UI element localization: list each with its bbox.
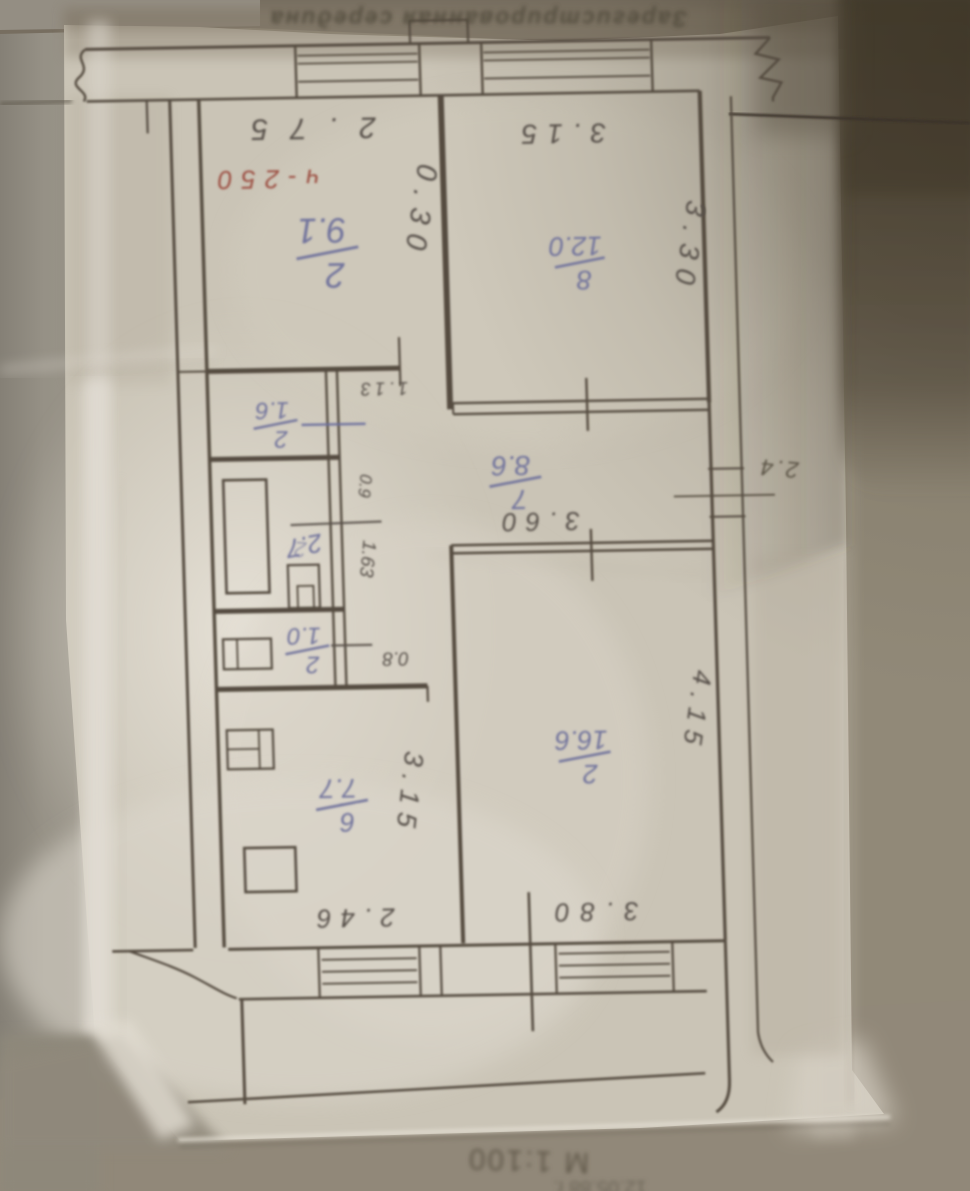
svg-text:7.7: 7.7 xyxy=(318,773,357,804)
svg-text:2.4: 2.4 xyxy=(757,454,801,484)
svg-text:1.0: 1.0 xyxy=(286,622,321,650)
svg-text:2: 2 xyxy=(582,759,599,789)
svg-text:0.8: 0.8 xyxy=(382,647,409,668)
svg-text:12.0: 12.0 xyxy=(549,231,602,262)
svg-text:ч-250: ч-250 xyxy=(208,163,319,195)
svg-text:16.6: 16.6 xyxy=(553,725,607,756)
svg-text:2: 2 xyxy=(325,255,347,294)
svg-text:8: 8 xyxy=(576,265,592,295)
svg-text:0.9: 0.9 xyxy=(354,473,375,499)
svg-text:7: 7 xyxy=(510,484,528,515)
svg-text:2.46: 2.46 xyxy=(308,903,397,935)
svg-text:8.6: 8.6 xyxy=(491,450,531,482)
svg-text:3.60: 3.60 xyxy=(493,506,581,537)
svg-text:12.05.88 г.: 12.05.88 г. xyxy=(553,1176,647,1191)
svg-text:M 1:100: M 1:100 xyxy=(466,1142,589,1179)
svg-text:3.80: 3.80 xyxy=(544,896,639,928)
svg-text:2: 2 xyxy=(306,651,321,678)
svg-text:1.63: 1.63 xyxy=(355,539,379,578)
svg-text:2: 2 xyxy=(274,425,289,452)
svg-text:9.1: 9.1 xyxy=(297,210,347,250)
svg-text:1.13: 1.13 xyxy=(357,378,409,399)
svg-text:6: 6 xyxy=(339,807,356,837)
svg-text:2.75: 2.75 xyxy=(229,110,377,146)
svg-text:3.15: 3.15 xyxy=(511,117,606,150)
svg-text:1.6: 1.6 xyxy=(254,396,289,424)
svg-text:Зарегистрированная середина: Зарегистрированная середина xyxy=(269,6,688,32)
svg-text:2: 2 xyxy=(294,537,309,563)
